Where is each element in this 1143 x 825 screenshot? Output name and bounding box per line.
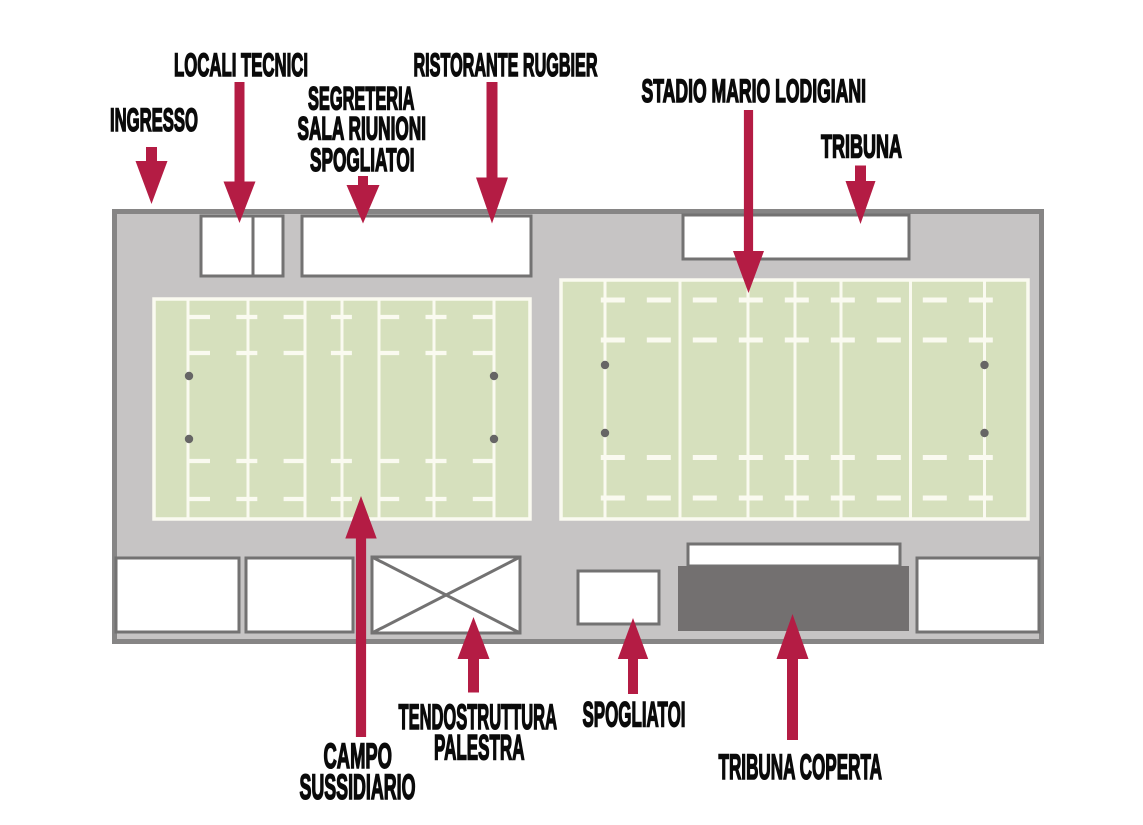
svg-text:STADIO MARIO LODIGIANI: STADIO MARIO LODIGIANI xyxy=(642,73,867,109)
svg-text:INGRESSO: INGRESSO xyxy=(110,102,198,138)
svg-text:LOCALI TECNICI: LOCALI TECNICI xyxy=(174,47,308,83)
svg-text:SPOGLIATOI: SPOGLIATOI xyxy=(583,696,686,735)
svg-text:RISTORANTE RUGBIER: RISTORANTE RUGBIER xyxy=(414,47,598,83)
svg-text:TRIBUNA: TRIBUNA xyxy=(821,128,902,164)
svg-text:PALESTRA: PALESTRA xyxy=(434,729,525,768)
svg-text:SPOGLIATOI: SPOGLIATOI xyxy=(310,142,415,178)
svg-text:TRIBUNA COPERTA: TRIBUNA COPERTA xyxy=(719,748,883,787)
svg-text:SUSSIDIARIO: SUSSIDIARIO xyxy=(300,768,416,807)
